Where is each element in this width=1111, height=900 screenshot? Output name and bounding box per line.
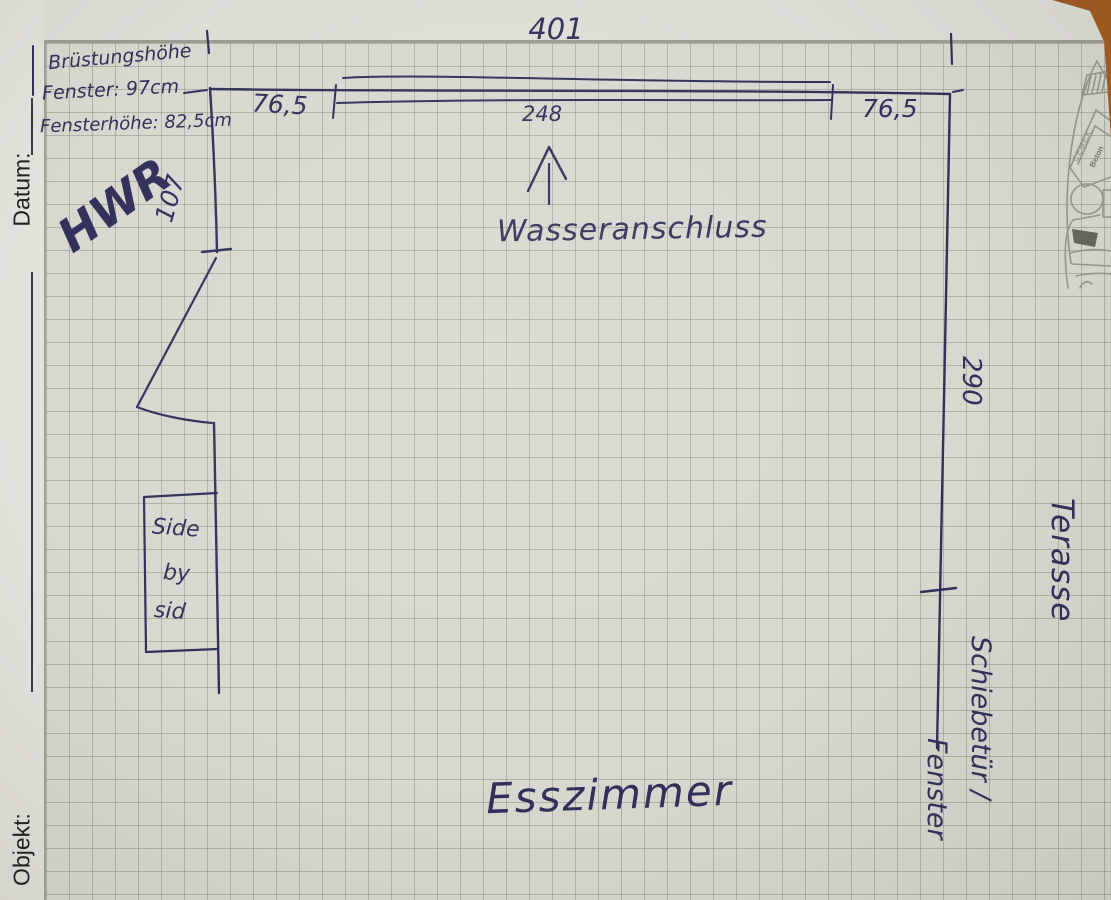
water-connection-label: Wasseranschluss (497, 210, 768, 250)
room-label-esszimmer: Esszimmer (485, 766, 734, 824)
dimension-total-width: 401 (518, 12, 594, 46)
datum-field-line (31, 98, 33, 155)
sliding-door-label-line1: Schiebetür / (965, 636, 996, 799)
dimension-right-wall: 290 (956, 356, 986, 406)
fridge-label-line3: sid (153, 598, 186, 625)
objekt-label: Objekt: (9, 810, 36, 890)
pad-left-margin (0, 0, 44, 900)
sliding-door-label-line2: Fenster (921, 738, 952, 840)
dimension-right-segment: 76,5 (862, 94, 918, 123)
fridge-label-line1: Side (151, 514, 200, 542)
fridge-label-line2: by (162, 560, 191, 587)
dimension-window-width: 248 (522, 102, 562, 126)
dimension-left-segment: 76,5 (251, 89, 308, 121)
objekt-field-line (31, 272, 33, 692)
datum-label: Datum: (9, 150, 36, 230)
outside-label-terasse: Terasse (1044, 498, 1080, 622)
notepad-paper: Datum: Objekt: CEMEX Beton (0, 0, 1111, 900)
